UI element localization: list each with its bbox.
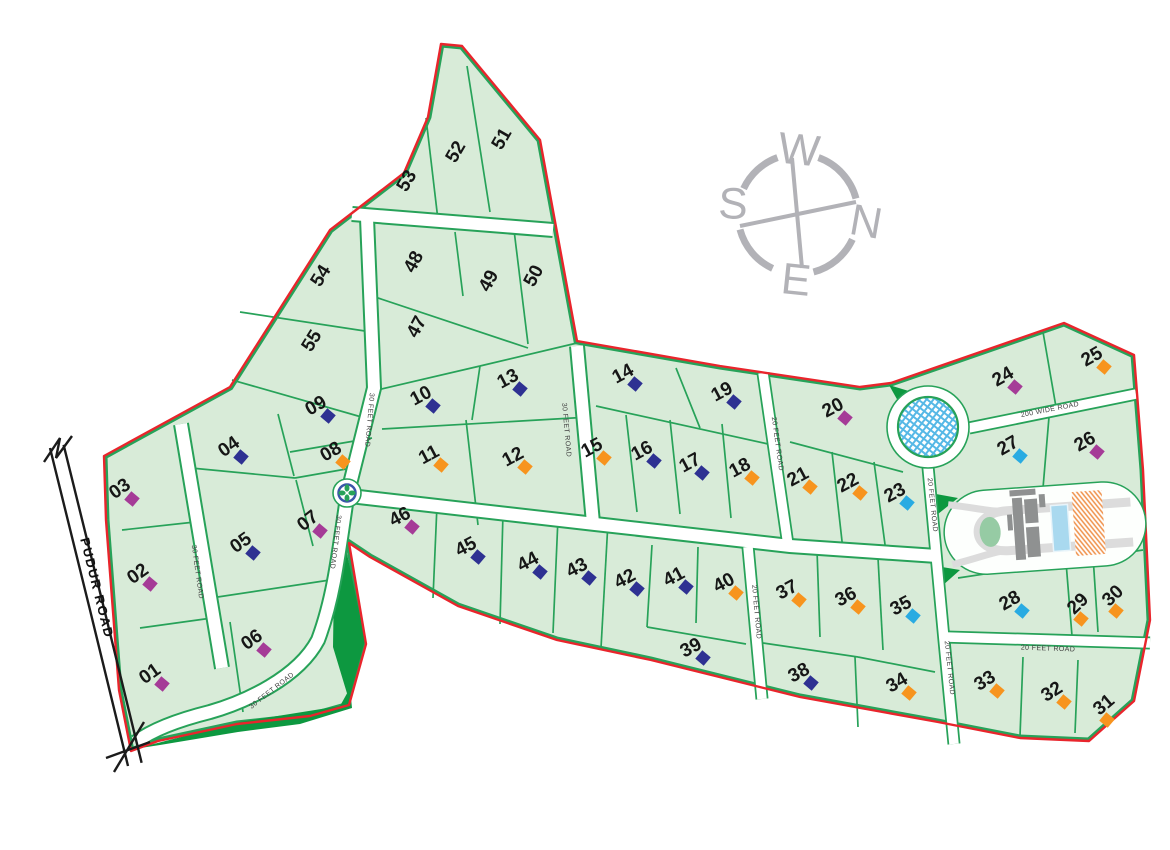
site-plan-map: 0102030405060708091011121314151617181920… bbox=[0, 0, 1170, 850]
big-roundabout bbox=[887, 386, 969, 468]
compass-west: W bbox=[776, 123, 823, 176]
compass-rose: W N E S bbox=[717, 123, 885, 305]
hatched-zone bbox=[1072, 490, 1106, 556]
small-roundabout bbox=[333, 479, 361, 507]
swimming-pool bbox=[1050, 504, 1070, 551]
compass-south: S bbox=[717, 179, 748, 229]
compass-east: E bbox=[779, 254, 813, 306]
clubhouse-area bbox=[941, 479, 1148, 577]
site-plan-page: 0102030405060708091011121314151617181920… bbox=[0, 0, 1170, 850]
